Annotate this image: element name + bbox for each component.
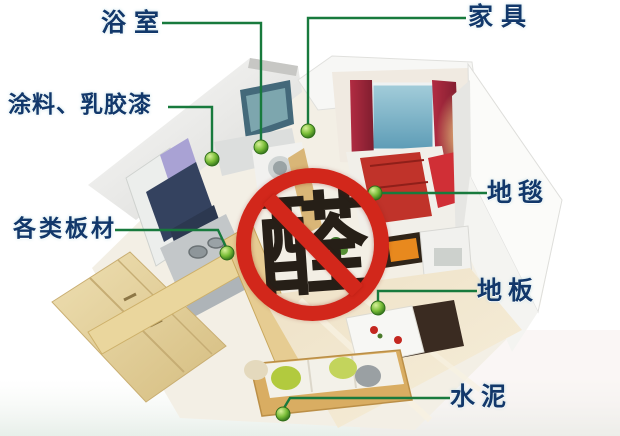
marker-dot-furniture — [301, 124, 315, 138]
label-floor: 地板 — [477, 278, 539, 303]
label-cement: 水泥 — [450, 384, 512, 409]
label-carpet: 地毯 — [487, 180, 549, 205]
marker-dot-boards — [220, 246, 234, 260]
gray-pillow — [355, 365, 381, 387]
marker-dot-cement — [276, 407, 290, 421]
prohibition-sign: 醛 — [236, 168, 389, 321]
label-paint-latex: 涂料、乳胶漆 — [8, 94, 152, 117]
formaldehyde-sources-diagram: 醛 浴室 家具 涂料、乳胶漆 各类板材 地毯 地板 水泥 — [0, 0, 620, 436]
marker-dot-bathroom — [254, 140, 268, 154]
label-furniture: 家具 — [468, 4, 534, 29]
bedroom-window — [372, 84, 434, 150]
label-bathroom: 浴室 — [101, 10, 167, 35]
label-boards: 各类板材 — [13, 218, 117, 241]
green-pillow — [271, 366, 301, 390]
marker-dot-paint — [205, 152, 219, 166]
